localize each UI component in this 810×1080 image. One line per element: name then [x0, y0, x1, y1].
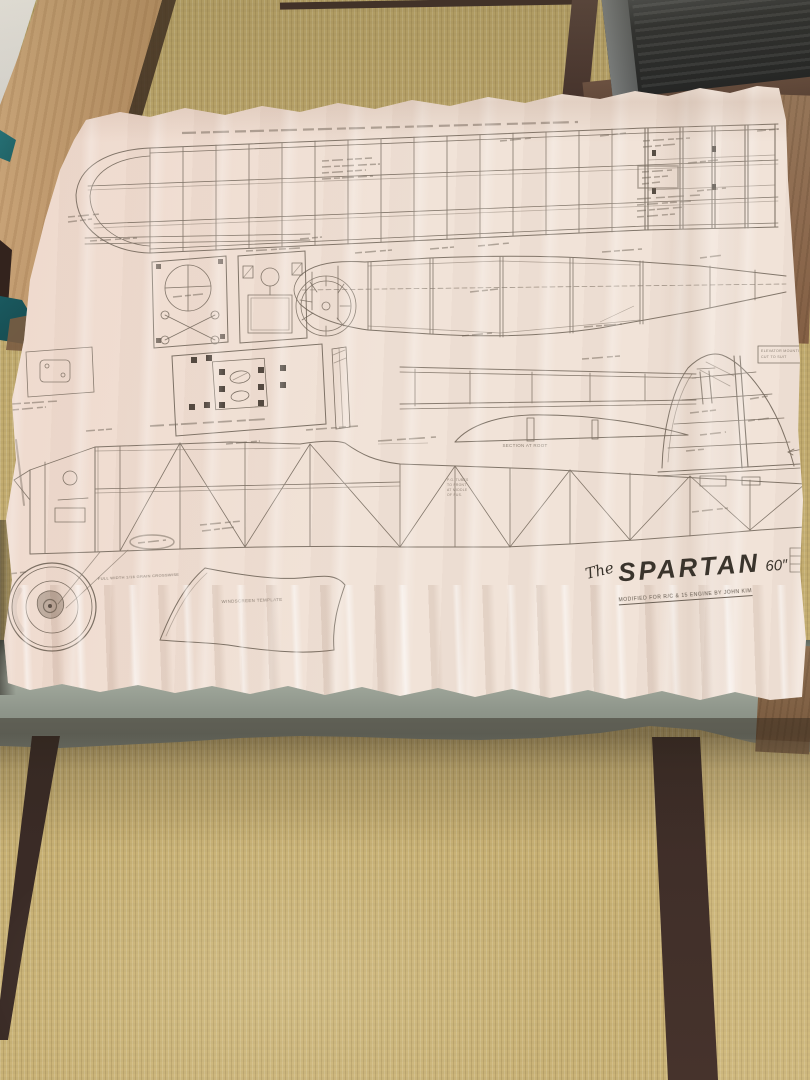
fuselage-top-view	[294, 256, 786, 337]
wing-center-section	[172, 344, 350, 436]
title-size: 60″	[765, 557, 788, 575]
tatami-right-section	[700, 735, 810, 1080]
tail-fin: ELEVATOR MOUNTING CUT TO SUIT	[658, 346, 808, 486]
photo-of-plan-sheet: ELEVATOR MOUNTING CUT TO SUIT SECTION AT…	[0, 0, 810, 1080]
plan-subtitle: MODIFIED FOR R/C & 15 ENGINE BY JOHN KIM	[618, 588, 752, 605]
elevator-note-line1: ELEVATOR MOUNTING	[761, 349, 805, 353]
elevator-note-line2: CUT TO SUIT	[761, 355, 787, 359]
svg-text:AT MIDDLE: AT MIDDLE	[447, 488, 468, 492]
strut-detail	[26, 347, 94, 397]
former-f2	[238, 251, 307, 343]
wheel-detail	[8, 563, 96, 651]
stabilizer-frame	[400, 367, 745, 409]
cowl-ring-former	[296, 276, 356, 336]
firewall-former	[152, 256, 228, 348]
windscreen-label: WINDSCREEN TEMPLATE	[221, 597, 282, 604]
annotation-squiggles	[8, 122, 779, 574]
grain-note: FULL WIDTH 1/16 GRAIN CROSSWISE	[98, 572, 180, 581]
mat-border-bottom-left	[0, 730, 70, 1050]
pushrod-note: P.G. TUBES TO FRONT AT MIDDLE OF FUS.	[447, 478, 469, 497]
wing-root-section: SECTION AT ROOT	[455, 415, 688, 448]
title-block: TheSPARTAN60″ MODIFIED FOR R/C & 15 ENGI…	[586, 545, 806, 635]
title-prefix: The	[583, 559, 615, 583]
svg-text:P.G. TUBES: P.G. TUBES	[447, 478, 469, 482]
svg-text:OF FUS.: OF FUS.	[447, 493, 462, 497]
root-section-label: SECTION AT ROOT	[502, 443, 547, 448]
windscreen-template: WINDSCREEN TEMPLATE	[160, 568, 345, 652]
svg-text:TO FRONT: TO FRONT	[447, 483, 467, 487]
